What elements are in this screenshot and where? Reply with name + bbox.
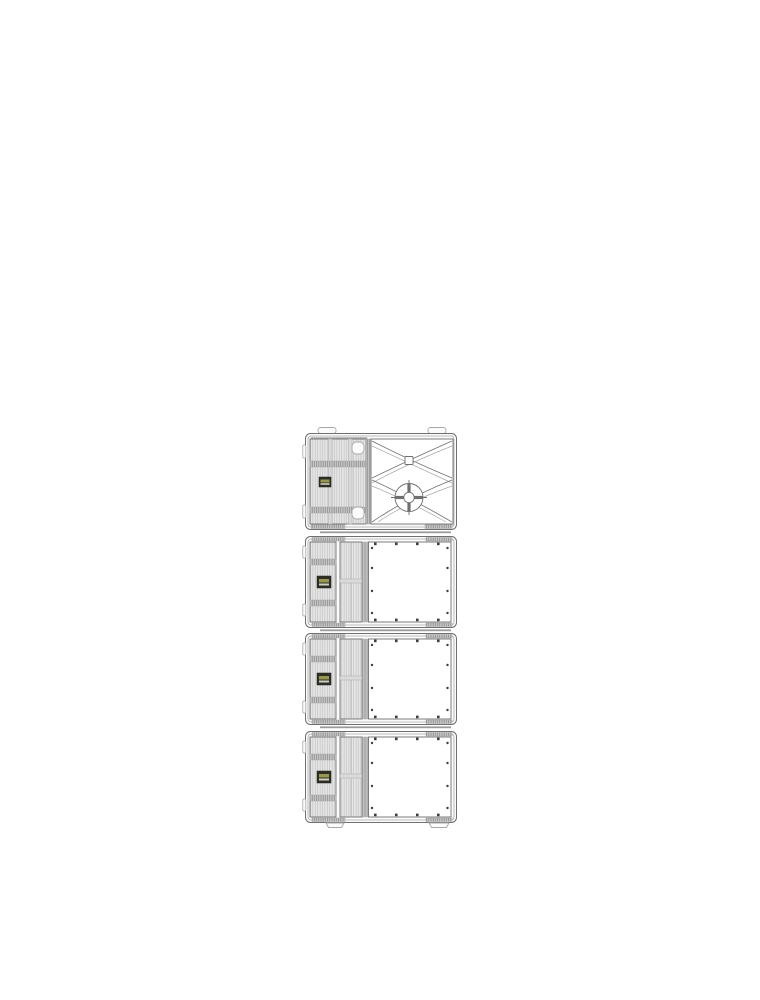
horn-throat-fitting [405, 457, 413, 465]
rigging-strip [311, 525, 345, 529]
foot [429, 823, 449, 828]
interlock-rail [320, 726, 451, 728]
interlock-rail [320, 629, 451, 631]
canvas [0, 0, 760, 1000]
horn-section [371, 439, 453, 524]
side-rigging-lug [303, 445, 306, 458]
cabinet-unit-3 [303, 634, 457, 725]
interlock-rail [320, 531, 451, 533]
cabinet-stack [303, 428, 457, 828]
top-rigging-tab [428, 428, 446, 434]
cabinet-unit-4 [303, 732, 457, 828]
rigging-strip [425, 525, 452, 529]
handle-cup [352, 507, 364, 519]
foot [326, 823, 344, 828]
cabinet-unit-1 [303, 428, 457, 530]
side-rigging-lug [303, 505, 306, 518]
top-rigging-tab [318, 428, 336, 434]
speaker-stack-drawing [0, 0, 760, 1000]
cabinet-unit-2 [303, 537, 457, 628]
grille-edge-bar [366, 439, 371, 524]
brand-badge [319, 477, 331, 487]
handle-cup [352, 442, 364, 454]
grille-section [310, 439, 366, 524]
